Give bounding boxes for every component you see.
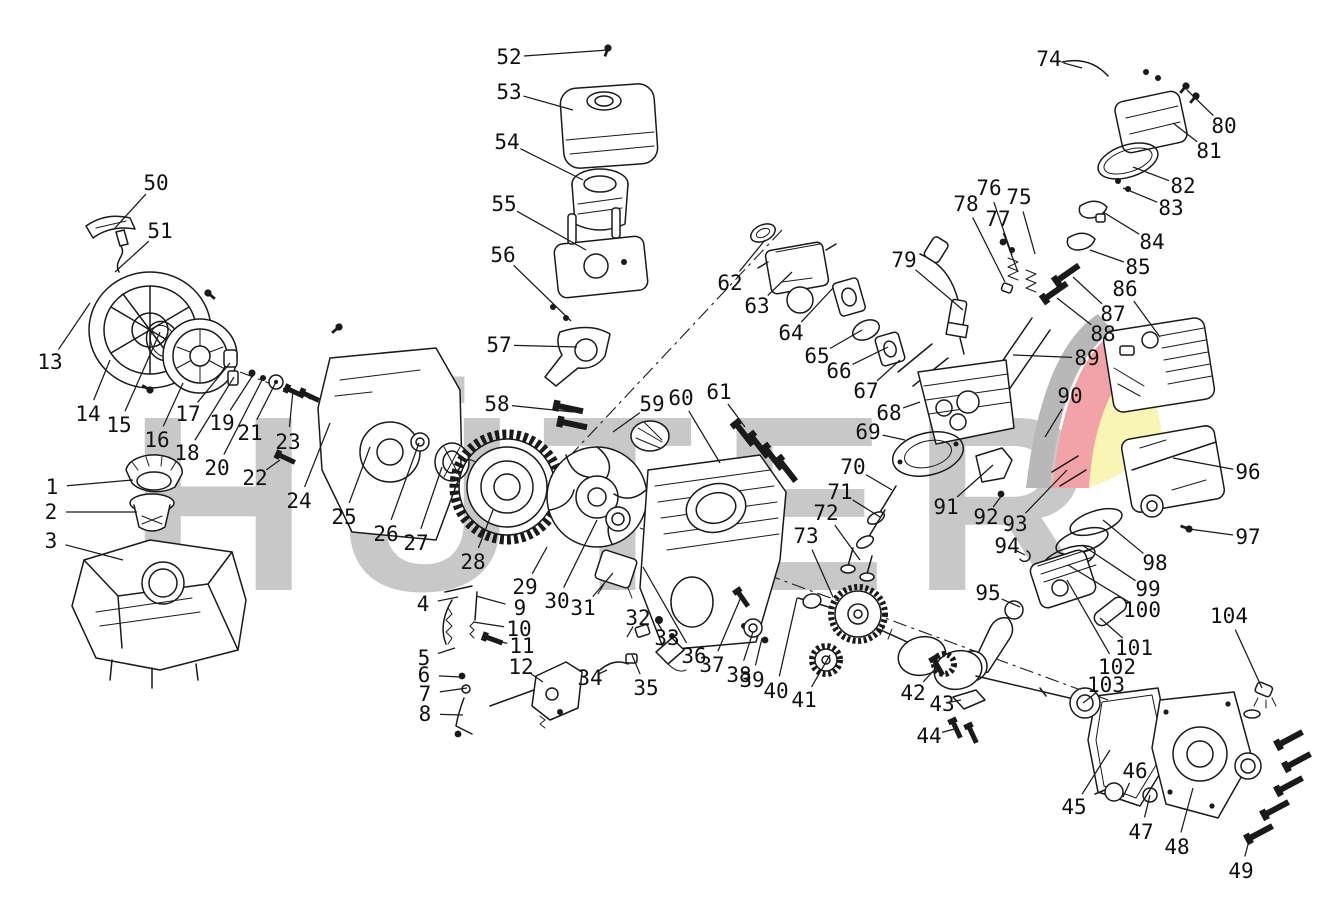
part-label-77: 77: [985, 207, 1010, 231]
part-label-14: 14: [75, 402, 100, 426]
carburetor: [758, 241, 836, 313]
cooling-fan: [547, 447, 647, 547]
part-label-43: 43: [929, 692, 954, 716]
part-label-57: 57: [486, 333, 511, 357]
leader-line-13: [58, 303, 90, 350]
leader-line-85: [1090, 250, 1124, 262]
muffler: [1120, 424, 1225, 533]
part-label-60: 60: [668, 386, 693, 410]
part-label-69: 69: [855, 420, 880, 444]
part-label-34: 34: [577, 666, 602, 690]
part-label-62: 62: [717, 271, 742, 295]
part-label-83: 83: [1158, 196, 1183, 220]
part-label-93: 93: [1002, 512, 1027, 536]
part-label-100: 100: [1123, 598, 1161, 622]
part-label-30: 30: [544, 589, 569, 613]
part-label-17: 17: [175, 402, 200, 426]
valve-springs: [1000, 239, 1036, 294]
part-label-55: 55: [491, 192, 516, 216]
part-label-73: 73: [793, 524, 818, 548]
part-label-52: 52: [496, 45, 521, 69]
part-label-28: 28: [460, 550, 485, 574]
cylinder-shroud: [1102, 317, 1216, 414]
leader-line-84: [1103, 212, 1139, 234]
part-label-22: 22: [242, 466, 267, 490]
part-label-45: 45: [1061, 795, 1086, 819]
part-label-19: 19: [209, 411, 234, 435]
valve-cover: [1062, 61, 1201, 186]
part-label-53: 53: [496, 80, 521, 104]
part-label-48: 48: [1164, 835, 1189, 859]
spark-plug: [920, 235, 968, 354]
part-label-85: 85: [1125, 255, 1150, 279]
part-label-51: 51: [147, 219, 172, 243]
part-label-96: 96: [1235, 460, 1260, 484]
part-label-32: 32: [625, 606, 650, 630]
part-label-89: 89: [1074, 346, 1099, 370]
part-label-20: 20: [204, 456, 229, 480]
starter-handle: [86, 216, 135, 272]
exploded-diagram: HÜTER: [0, 0, 1339, 912]
part-label-31: 31: [570, 596, 595, 620]
part-label-13: 13: [37, 350, 62, 374]
part-label-58: 58: [484, 392, 509, 416]
part-label-81: 81: [1196, 139, 1221, 163]
part-label-8: 8: [419, 702, 432, 726]
part-label-15: 15: [106, 413, 131, 437]
part-label-44: 44: [916, 724, 941, 748]
part-label-72: 72: [813, 501, 838, 525]
part-label-49: 49: [1228, 859, 1253, 883]
part-label-21: 21: [237, 421, 262, 445]
part-label-40: 40: [763, 679, 788, 703]
part-label-26: 26: [373, 522, 398, 546]
part-label-82: 82: [1170, 174, 1195, 198]
part-label-47: 47: [1128, 820, 1153, 844]
leader-line-6: [439, 676, 460, 677]
governor-gear: [812, 646, 840, 674]
part-label-98: 98: [1142, 551, 1167, 575]
part-label-23: 23: [275, 430, 300, 454]
leader-line-52: [524, 50, 608, 56]
part-label-95: 95: [975, 581, 1000, 605]
part-label-56: 56: [490, 243, 515, 267]
part-label-104: 104: [1210, 604, 1248, 628]
part-label-70: 70: [840, 455, 865, 479]
part-label-78: 78: [953, 192, 978, 216]
part-label-61: 61: [706, 380, 731, 404]
part-label-86: 86: [1112, 277, 1137, 301]
part-label-25: 25: [331, 505, 356, 529]
leader-line-79: [915, 270, 963, 310]
part-label-103: 103: [1087, 673, 1125, 697]
starter-cup-front: [606, 507, 630, 531]
oil-sensor: [1244, 681, 1276, 718]
part-label-12: 12: [508, 655, 533, 679]
fuel-tank: [72, 540, 246, 688]
part-label-39: 39: [739, 668, 764, 692]
part-label-1: 1: [46, 475, 59, 499]
part-label-16: 16: [144, 428, 169, 452]
part-label-3: 3: [45, 529, 58, 553]
part-label-41: 41: [791, 688, 816, 712]
part-label-33: 33: [654, 626, 679, 650]
leader-line-97: [1189, 529, 1233, 535]
part-label-74: 74: [1036, 47, 1061, 71]
leader-line-88: [1057, 298, 1091, 325]
part-label-94: 94: [994, 534, 1019, 558]
part-label-92: 92: [973, 505, 998, 529]
part-label-37: 37: [699, 653, 724, 677]
part-label-88: 88: [1090, 322, 1115, 346]
part-label-76: 76: [976, 176, 1001, 200]
leader-line-1: [67, 480, 133, 486]
part-label-54: 54: [494, 130, 519, 154]
part-label-27: 27: [403, 531, 428, 555]
part-label-67: 67: [853, 379, 878, 403]
part-label-63: 63: [744, 294, 769, 318]
cover-bolts: [1243, 727, 1313, 845]
leader-line-75: [1023, 211, 1035, 254]
diagram-canvas: HÜTER: [0, 0, 1339, 912]
part-label-64: 64: [778, 321, 803, 345]
part-label-79: 79: [891, 248, 916, 272]
leader-line-5: [438, 648, 455, 654]
part-label-97: 97: [1235, 525, 1260, 549]
part-label-75: 75: [1006, 185, 1031, 209]
part-label-50: 50: [143, 171, 168, 195]
carb-insulator: [832, 277, 866, 317]
air-filter-cover: [559, 43, 658, 169]
part-label-90: 90: [1057, 384, 1082, 408]
part-label-80: 80: [1211, 114, 1236, 138]
leader-line-8: [440, 714, 463, 715]
part-label-35: 35: [633, 676, 658, 700]
part-label-59: 59: [639, 392, 664, 416]
intake-plate: [874, 331, 905, 366]
part-label-18: 18: [174, 441, 199, 465]
part-label-84: 84: [1139, 230, 1164, 254]
crankcase-cover: [1152, 692, 1252, 818]
leader-line-87: [1073, 277, 1102, 304]
part-label-2: 2: [45, 500, 58, 524]
part-label-29: 29: [512, 575, 537, 599]
part-label-4: 4: [417, 592, 430, 616]
leader-line-83: [1123, 188, 1157, 202]
part-label-66: 66: [826, 359, 851, 383]
part-label-24: 24: [286, 489, 311, 513]
part-label-46: 46: [1122, 759, 1147, 783]
part-label-42: 42: [900, 681, 925, 705]
shroud-cup-59: [631, 421, 669, 451]
part-label-91: 91: [933, 495, 958, 519]
leader-line-74: [1063, 63, 1082, 68]
leader-line-104: [1235, 630, 1262, 688]
